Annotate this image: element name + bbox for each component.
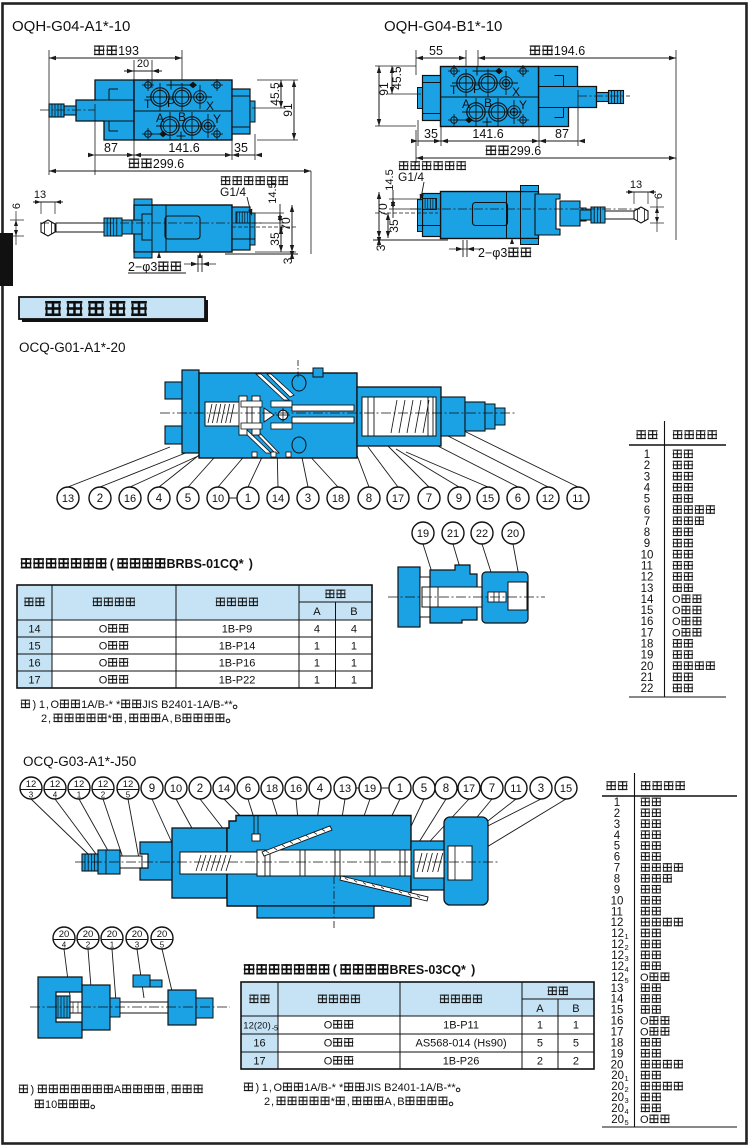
svg-text:16: 16	[641, 616, 654, 628]
svg-text:6: 6	[245, 783, 251, 795]
svg-text:15: 15	[482, 493, 494, 505]
svg-text:,: ,	[124, 713, 127, 725]
svg-text:14: 14	[28, 624, 40, 636]
svg-text:22: 22	[476, 528, 488, 540]
svg-text:1B-P11: 1B-P11	[443, 1020, 479, 1032]
svg-text:,: ,	[393, 1096, 396, 1108]
svg-text:X: X	[206, 99, 214, 113]
svg-text:19: 19	[364, 783, 376, 795]
svg-text:299.6: 299.6	[153, 157, 184, 171]
svg-text:B: B	[572, 1003, 579, 1015]
svg-text:2: 2	[86, 941, 91, 950]
svg-text:55: 55	[429, 44, 443, 58]
svg-text:7: 7	[489, 783, 495, 795]
svg-text:35: 35	[424, 127, 438, 141]
svg-text:194.6: 194.6	[554, 44, 585, 58]
svg-text:1: 1	[625, 932, 629, 941]
svg-text:1A/B-* *: 1A/B-* *	[81, 699, 121, 711]
svg-text:20: 20	[132, 929, 143, 940]
svg-text:B: B	[350, 606, 357, 618]
svg-text:12: 12	[641, 572, 654, 584]
svg-text:B: B	[484, 96, 492, 110]
svg-text:1: 1	[314, 675, 320, 687]
svg-text:1: 1	[573, 1020, 579, 1032]
svg-text:G1/4: G1/4	[398, 170, 424, 184]
svg-text:16: 16	[290, 783, 302, 795]
svg-text:12(20): 12(20)	[243, 1021, 270, 1032]
svg-text:O: O	[672, 627, 681, 639]
svg-text:87: 87	[104, 141, 118, 155]
svg-text:1B-P9: 1B-P9	[222, 624, 253, 636]
svg-text:2: 2	[197, 783, 203, 795]
svg-text:): )	[256, 1082, 260, 1094]
svg-text:1: 1	[351, 675, 357, 687]
svg-text:87: 87	[555, 127, 569, 141]
svg-text:T: T	[450, 83, 458, 97]
svg-text:A: A	[156, 111, 164, 125]
svg-text:O: O	[324, 1038, 333, 1050]
svg-text:8: 8	[443, 783, 449, 795]
svg-text:2: 2	[101, 791, 106, 800]
svg-text:4: 4	[53, 791, 58, 800]
svg-text:O: O	[99, 675, 108, 687]
svg-text:35: 35	[268, 232, 282, 246]
svg-text:2: 2	[644, 460, 650, 472]
svg-text:193: 193	[118, 44, 139, 58]
svg-text:16: 16	[253, 1038, 265, 1050]
svg-text:1: 1	[537, 1020, 543, 1032]
svg-text:141.6: 141.6	[168, 141, 199, 155]
svg-text:B: B	[174, 713, 181, 725]
svg-text:O: O	[640, 1114, 649, 1126]
svg-text:3: 3	[135, 941, 140, 950]
svg-text:18: 18	[266, 783, 278, 795]
svg-text:20: 20	[59, 929, 70, 940]
svg-text:5: 5	[644, 494, 650, 506]
svg-text:13: 13	[62, 493, 74, 505]
svg-text:35: 35	[387, 219, 401, 233]
svg-text:1B-P16: 1B-P16	[219, 658, 256, 670]
svg-text:21: 21	[447, 528, 459, 540]
svg-text:4: 4	[625, 965, 629, 974]
svg-text:9: 9	[456, 493, 462, 505]
svg-text:14: 14	[272, 493, 284, 505]
svg-text:A: A	[536, 1003, 544, 1015]
svg-text:6: 6	[11, 203, 23, 209]
svg-text:Y: Y	[519, 98, 527, 112]
svg-text:1: 1	[39, 699, 45, 711]
svg-text:4: 4	[156, 493, 163, 505]
svg-text:BRES-03CQ*: BRES-03CQ*	[390, 963, 467, 977]
svg-text:1: 1	[110, 941, 115, 950]
svg-text:16: 16	[28, 658, 40, 670]
svg-text:1: 1	[245, 493, 251, 505]
svg-text:JIS B2401-1A/B-**: JIS B2401-1A/B-**	[142, 699, 233, 711]
svg-text:1: 1	[262, 1082, 268, 1094]
svg-text:1: 1	[314, 641, 320, 653]
svg-text:9: 9	[149, 783, 155, 795]
svg-text:13: 13	[630, 179, 642, 191]
svg-text:12: 12	[542, 493, 554, 505]
svg-text:6: 6	[653, 193, 665, 199]
svg-text:,: ,	[271, 1096, 274, 1108]
svg-text:A: A	[462, 97, 470, 111]
svg-text:20: 20	[137, 58, 149, 70]
svg-text:,: ,	[166, 1084, 169, 1096]
svg-text:4: 4	[351, 624, 357, 636]
svg-text:,: ,	[46, 699, 49, 711]
svg-text:Y: Y	[213, 112, 221, 126]
svg-text:5: 5	[537, 1038, 543, 1050]
svg-text:12: 12	[98, 779, 109, 790]
svg-text:O: O	[324, 1020, 333, 1032]
svg-text:35: 35	[234, 141, 248, 155]
svg-text:4: 4	[314, 624, 320, 636]
svg-text:): )	[249, 557, 253, 571]
svg-text:*: *	[108, 713, 113, 725]
svg-text:4: 4	[644, 482, 651, 494]
svg-text:5: 5	[160, 941, 165, 950]
svg-text:12: 12	[26, 779, 37, 790]
svg-text:12: 12	[123, 779, 134, 790]
svg-text:O: O	[99, 658, 108, 670]
svg-text:13: 13	[34, 189, 46, 201]
svg-text:10: 10	[170, 783, 182, 795]
svg-text:1: 1	[77, 791, 82, 800]
svg-text:4: 4	[62, 941, 67, 950]
svg-text:3: 3	[625, 954, 629, 963]
svg-text:17: 17	[28, 675, 40, 687]
svg-text:2: 2	[625, 943, 629, 952]
svg-text:1: 1	[351, 641, 357, 653]
svg-text:13: 13	[339, 783, 351, 795]
svg-text:15: 15	[28, 641, 40, 653]
svg-text:18: 18	[332, 493, 344, 505]
svg-text:13: 13	[641, 583, 654, 595]
svg-text:-5: -5	[272, 1026, 278, 1033]
svg-text:91: 91	[281, 103, 295, 117]
svg-text:P: P	[473, 82, 481, 96]
svg-text:2−φ3: 2−φ3	[128, 260, 157, 274]
svg-text:20: 20	[611, 1114, 624, 1126]
svg-text:X: X	[512, 85, 520, 99]
svg-text:17: 17	[463, 783, 475, 795]
svg-text:O: O	[274, 1082, 283, 1094]
svg-text:299.6: 299.6	[510, 144, 541, 158]
svg-text:1B-P26: 1B-P26	[443, 1056, 480, 1068]
svg-text:17: 17	[392, 493, 404, 505]
svg-text:19: 19	[641, 650, 654, 662]
svg-text:): )	[33, 699, 37, 711]
svg-text:2: 2	[97, 493, 103, 505]
svg-text:,: ,	[347, 1096, 350, 1108]
svg-text:1: 1	[625, 1074, 629, 1083]
svg-text:5: 5	[421, 783, 427, 795]
svg-text:OQH-G04-B1*-10: OQH-G04-B1*-10	[384, 18, 502, 35]
svg-text:18: 18	[641, 639, 654, 651]
svg-text:14.5: 14.5	[267, 182, 279, 203]
svg-text:16: 16	[124, 493, 136, 505]
svg-text:22: 22	[641, 683, 654, 695]
svg-text:O: O	[324, 1056, 333, 1068]
svg-text:10: 10	[212, 493, 224, 505]
svg-text:,: ,	[48, 713, 51, 725]
svg-text:A: A	[114, 1084, 122, 1096]
svg-text:3: 3	[374, 244, 388, 251]
svg-text:4: 4	[625, 1107, 629, 1116]
svg-text:4: 4	[317, 783, 324, 795]
svg-text:6: 6	[515, 493, 521, 505]
svg-text:19: 19	[417, 528, 429, 540]
svg-text:3: 3	[305, 493, 311, 505]
svg-text:A: A	[384, 1096, 392, 1108]
svg-text:OCQ-G03-A1*-J50: OCQ-G03-A1*-J50	[23, 754, 136, 769]
svg-text:8: 8	[366, 493, 372, 505]
svg-text:AS568-014 (Hs90): AS568-014 (Hs90)	[416, 1038, 507, 1050]
svg-text:3: 3	[29, 791, 34, 800]
svg-text:7: 7	[426, 493, 432, 505]
svg-text:20: 20	[157, 929, 168, 940]
svg-text:JIS B2401-1A/B-**: JIS B2401-1A/B-**	[365, 1082, 456, 1094]
svg-text:12: 12	[74, 779, 85, 790]
svg-text:O: O	[672, 616, 681, 628]
svg-text:14: 14	[218, 783, 230, 795]
svg-text:T: T	[144, 97, 152, 111]
svg-text:B: B	[178, 110, 186, 124]
svg-text:1A/B-* *: 1A/B-* *	[304, 1082, 344, 1094]
svg-text:1: 1	[397, 783, 403, 795]
svg-text:5: 5	[625, 976, 629, 985]
svg-text:5: 5	[573, 1038, 579, 1050]
svg-text:2: 2	[537, 1056, 543, 1068]
svg-text:3: 3	[538, 783, 544, 795]
svg-text:3: 3	[625, 1096, 629, 1105]
svg-text:,: ,	[170, 713, 173, 725]
svg-text:A: A	[313, 606, 321, 618]
svg-text:O: O	[640, 972, 649, 984]
svg-text:BRBS-01CQ*: BRBS-01CQ*	[167, 557, 244, 571]
svg-text:O: O	[99, 641, 108, 653]
svg-text:2: 2	[264, 1096, 270, 1108]
svg-text:1: 1	[314, 658, 320, 670]
svg-text:O: O	[51, 699, 60, 711]
svg-text:14.5: 14.5	[384, 169, 396, 190]
svg-text:11: 11	[510, 783, 521, 795]
svg-text:15: 15	[560, 783, 572, 795]
svg-text:2−φ3: 2−φ3	[478, 246, 507, 260]
svg-text:): )	[471, 963, 475, 977]
svg-text:1B-P14: 1B-P14	[219, 641, 256, 653]
svg-text:8: 8	[644, 527, 650, 539]
svg-text:2: 2	[41, 713, 47, 725]
svg-text:A: A	[161, 713, 169, 725]
svg-text:P: P	[167, 96, 175, 110]
svg-text:5: 5	[126, 791, 131, 800]
svg-text:B: B	[397, 1096, 404, 1108]
svg-text:1: 1	[351, 658, 357, 670]
svg-text:G1/4: G1/4	[220, 185, 246, 199]
svg-text:5: 5	[625, 1118, 629, 1127]
svg-text:OCQ-G01-A1*-20: OCQ-G01-A1*-20	[19, 340, 126, 355]
svg-text:141.6: 141.6	[472, 127, 503, 141]
svg-text:20: 20	[507, 528, 519, 540]
svg-text:,: ,	[269, 1082, 272, 1094]
svg-text:17: 17	[253, 1056, 265, 1068]
svg-text:OQH-G04-A1*-10: OQH-G04-A1*-10	[12, 18, 130, 35]
svg-text:1B-P22: 1B-P22	[219, 675, 256, 687]
svg-text:10: 10	[45, 1099, 57, 1111]
svg-text:O: O	[99, 624, 108, 636]
svg-text:5: 5	[185, 493, 191, 505]
svg-text:2: 2	[625, 1085, 629, 1094]
svg-text:9: 9	[644, 538, 650, 550]
svg-text:): )	[31, 1084, 35, 1096]
svg-text:2: 2	[573, 1056, 579, 1068]
svg-text:12: 12	[50, 779, 61, 790]
svg-text:20: 20	[107, 929, 118, 940]
svg-text:O: O	[640, 1027, 649, 1039]
svg-text:11: 11	[572, 493, 583, 505]
svg-text:20: 20	[83, 929, 94, 940]
svg-text:*: *	[331, 1096, 336, 1108]
